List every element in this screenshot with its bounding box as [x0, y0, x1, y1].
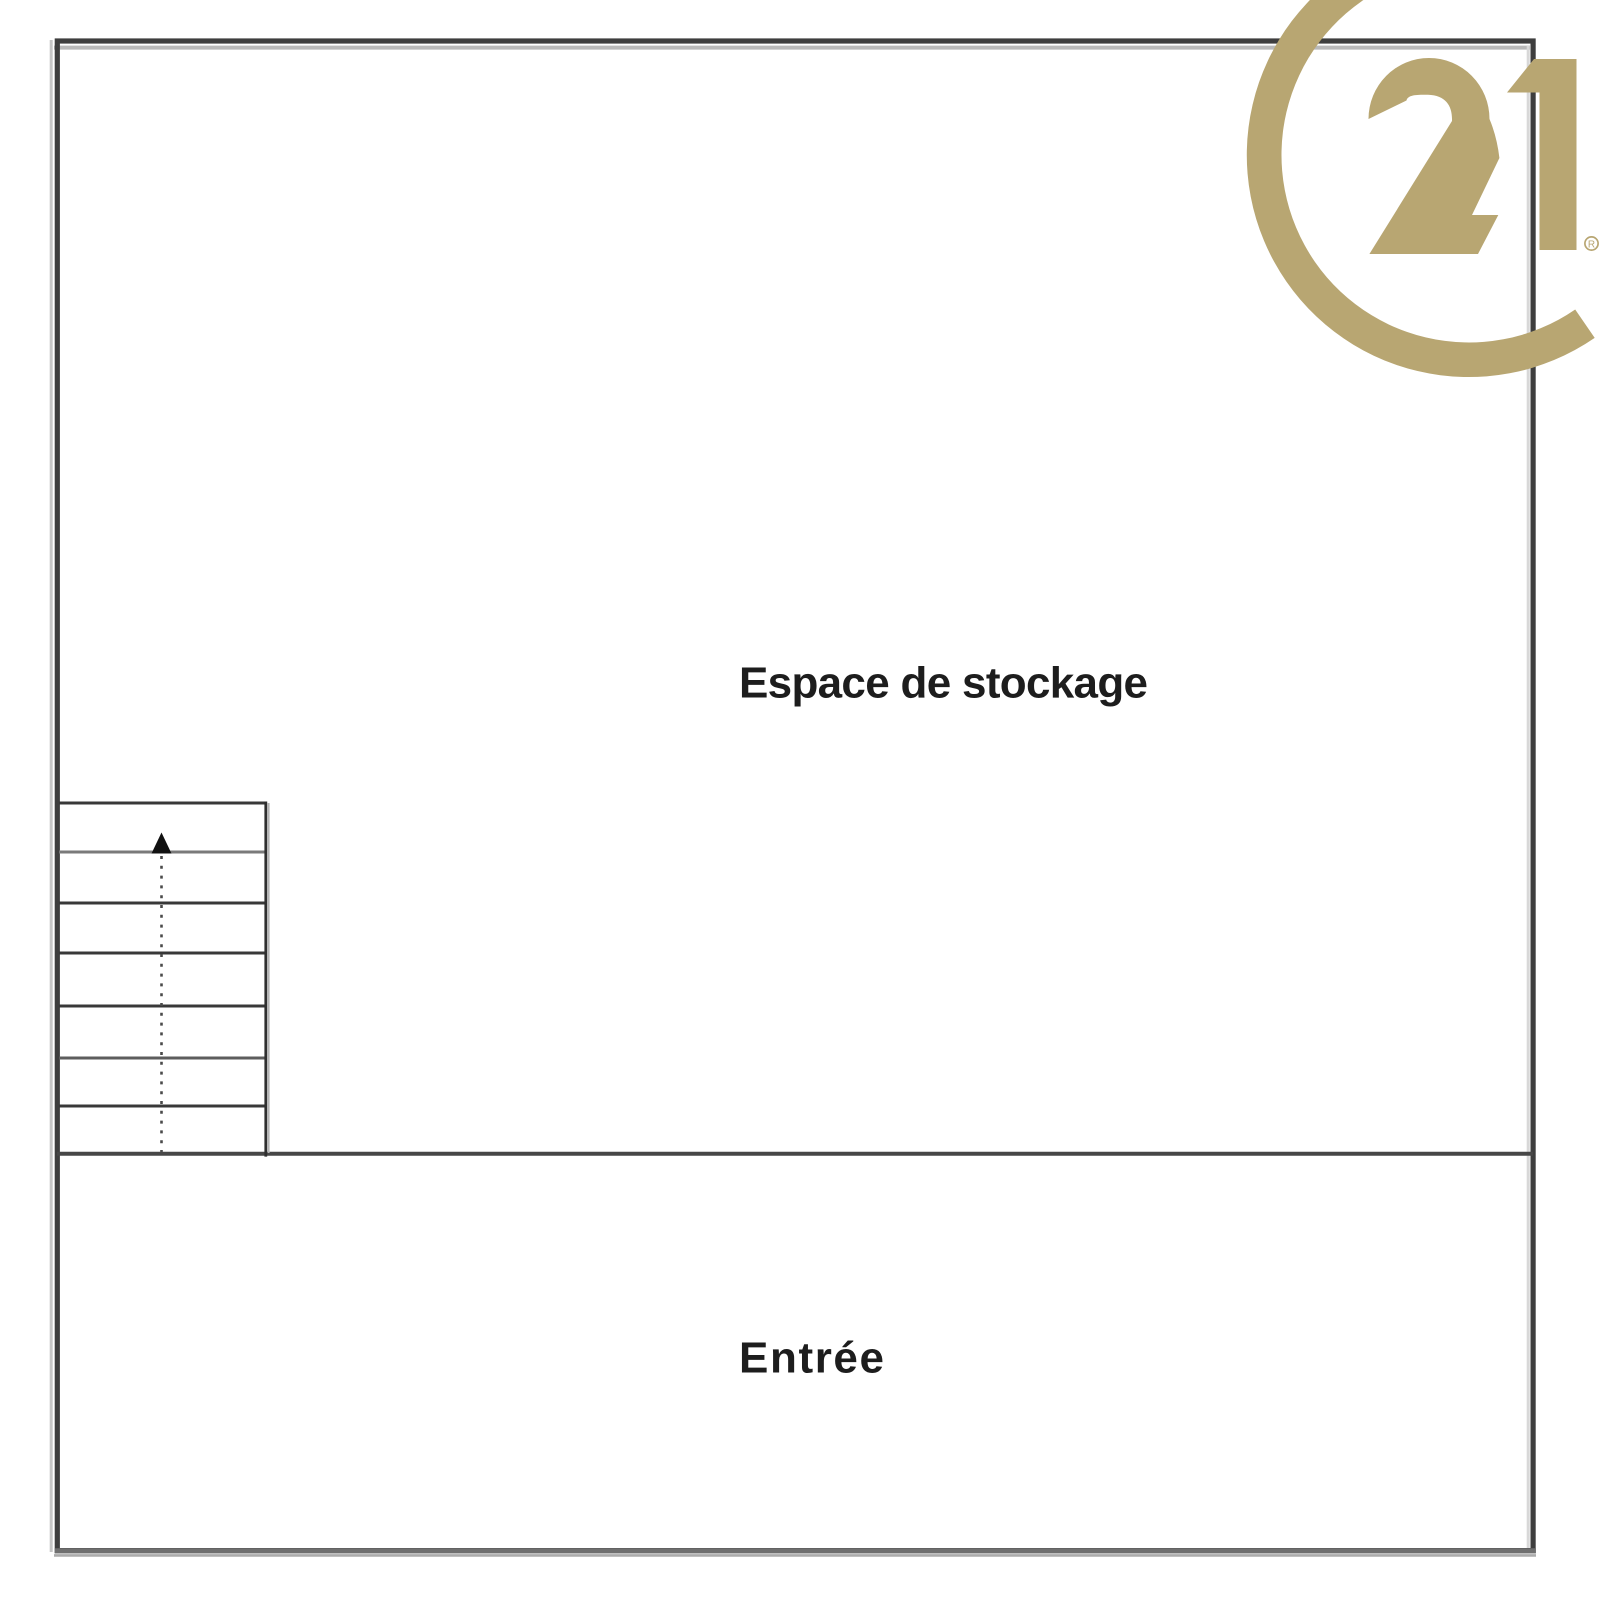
svg-text:Entrée: Entrée — [739, 1333, 884, 1382]
svg-text:Espace de stockage: Espace de stockage — [739, 659, 1148, 708]
svg-text:R: R — [1588, 239, 1595, 250]
